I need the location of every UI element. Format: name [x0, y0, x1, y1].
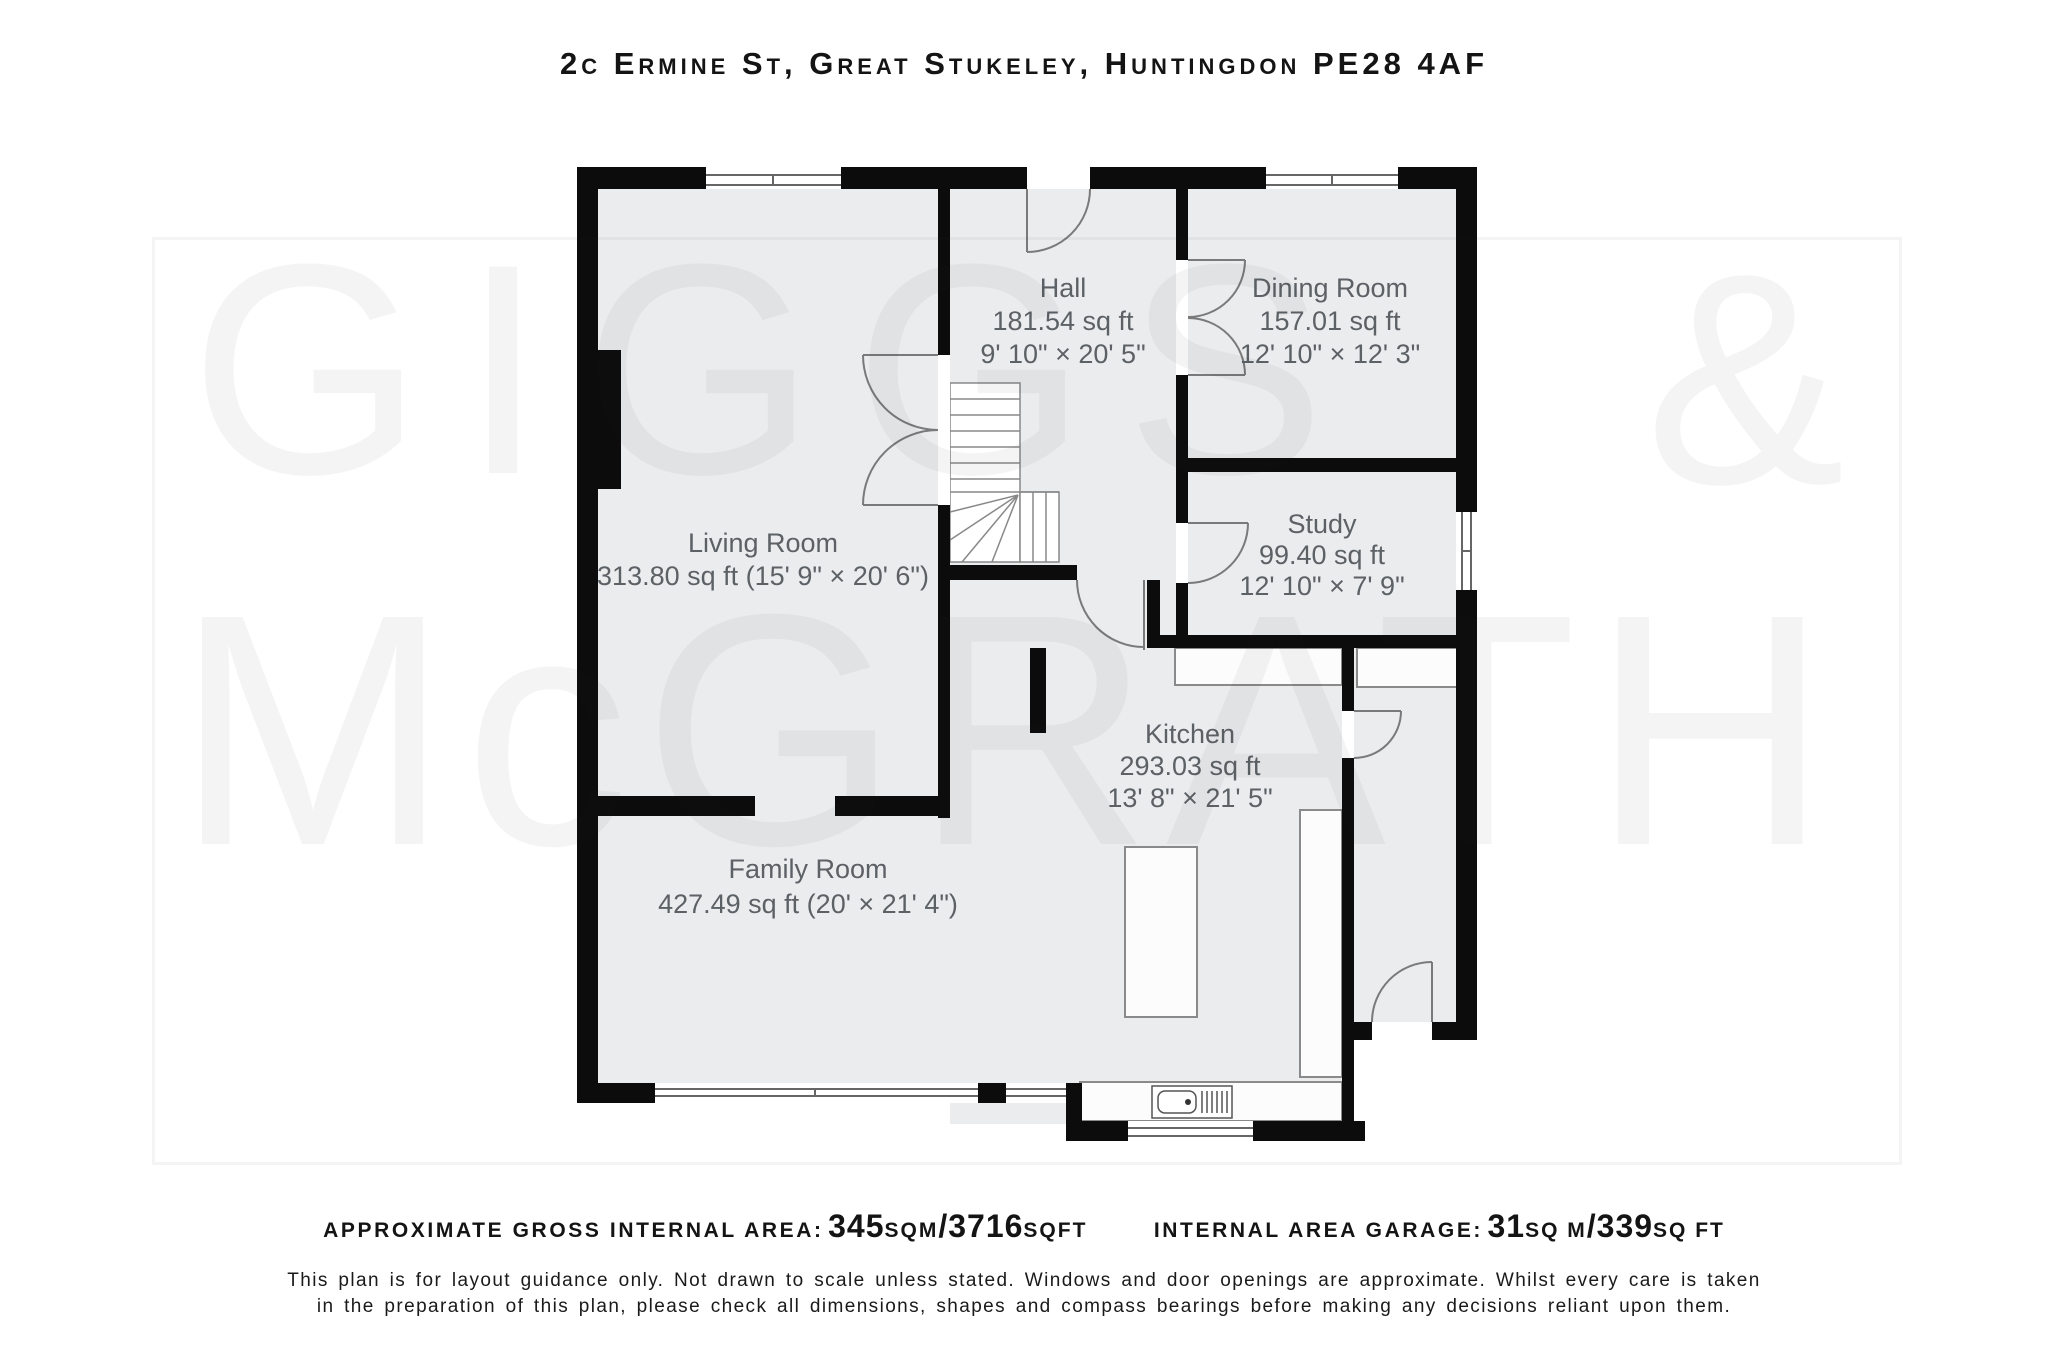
svg-text:157.01 sq ft: 157.01 sq ft	[1259, 306, 1401, 336]
window-study-right	[1456, 512, 1477, 590]
svg-text:Living Room: Living Room	[688, 528, 838, 558]
svg-text:12' 10" × 7' 9": 12' 10" × 7' 9"	[1239, 571, 1404, 601]
svg-text:12' 10" × 12' 3": 12' 10" × 12' 3"	[1240, 339, 1420, 369]
kitchen-sink	[1152, 1086, 1232, 1118]
disclaimer-line-1: This plan is for layout guidance only. N…	[0, 1268, 2048, 1294]
wall-living-family-a	[598, 796, 755, 816]
wall-living-family-b	[835, 796, 950, 816]
garage-area-slash: /	[1587, 1208, 1597, 1244]
wall-study-bottom	[1147, 635, 1456, 648]
disclaimer-line-2: in the preparation of this plan, please …	[0, 1294, 2048, 1320]
wall-kitchen-rearhall-a	[1342, 645, 1354, 711]
wall-hall-bottom	[950, 565, 1077, 580]
wall-living-hall-b	[938, 505, 950, 818]
floor-plan-drawing: Hall 181.54 sq ft 9' 10" × 20' 5" Dining…	[0, 0, 2048, 1365]
svg-text:Hall: Hall	[1040, 273, 1087, 303]
wall-right	[1456, 167, 1477, 1040]
garage-internal-area: Internal area garage: 31sq m/339sq ft	[1154, 1208, 1725, 1245]
gross-area-label: Approximate gross internal area:	[323, 1219, 824, 1242]
gross-area-sqft-value: 3716	[948, 1208, 1023, 1244]
wall-left	[577, 167, 598, 1103]
wall-hall-dining-a	[1176, 167, 1188, 260]
disclaimer: This plan is for layout guidance only. N…	[0, 1268, 2048, 1320]
wall-stub-hall	[1147, 580, 1160, 635]
internal-area-summary: Approximate gross internal area: 345sqm/…	[0, 1208, 2048, 1245]
gross-area-slash: /	[938, 1208, 948, 1244]
label-dining-room: Dining Room 157.01 sq ft 12' 10" × 12' 3…	[1240, 273, 1420, 369]
svg-text:Family Room: Family Room	[728, 854, 887, 884]
counter-under-study	[1175, 648, 1342, 685]
svg-text:9' 10" × 20' 5": 9' 10" × 20' 5"	[980, 339, 1145, 369]
svg-text:Dining Room: Dining Room	[1252, 273, 1408, 303]
counter-right	[1300, 810, 1342, 1077]
svg-text:99.40 sq ft: 99.40 sq ft	[1259, 540, 1386, 570]
garage-area-sqm-value: 31	[1487, 1208, 1525, 1244]
garage-area-sqft-unit: sq ft	[1653, 1219, 1725, 1242]
counter-rear-hall	[1357, 648, 1457, 687]
wall-dining-study	[1188, 458, 1456, 472]
window-living-top	[706, 167, 841, 189]
svg-text:13' 8" × 21' 5": 13' 8" × 21' 5"	[1107, 783, 1272, 813]
wall-kitchen-rearhall-b	[1342, 758, 1354, 1141]
gross-area-sqft-unit: sqft	[1023, 1219, 1087, 1242]
kitchen-island	[1125, 847, 1197, 1017]
gross-area-sqm-value: 345	[828, 1208, 884, 1244]
wall-stub-kitchen	[1030, 648, 1046, 733]
garage-area-sqm-unit: sq m	[1525, 1219, 1587, 1242]
garage-area-sqft-value: 339	[1597, 1208, 1653, 1244]
wall-living-hall-a	[938, 167, 950, 355]
svg-text:313.80 sq ft (15' 9" × 20' 6"): 313.80 sq ft (15' 9" × 20' 6")	[597, 561, 929, 591]
wall-hall-dining-b	[1176, 375, 1188, 523]
gross-internal-area: Approximate gross internal area: 345sqm/…	[323, 1208, 1087, 1245]
svg-text:181.54 sq ft: 181.54 sq ft	[992, 306, 1134, 336]
svg-text:Kitchen: Kitchen	[1145, 719, 1235, 749]
svg-text:Study: Study	[1287, 509, 1357, 539]
svg-text:427.49 sq ft (20' × 21' 4"): 427.49 sq ft (20' × 21' 4")	[658, 889, 958, 919]
svg-text:293.03 sq ft: 293.03 sq ft	[1119, 751, 1261, 781]
chimney-breast	[577, 350, 621, 489]
window-kitchen-bottom	[1128, 1121, 1253, 1141]
floorplan-page: 2c Ermine St, Great Stukeley, Huntingdon…	[0, 0, 2048, 1365]
garage-area-label: Internal area garage:	[1154, 1219, 1483, 1242]
gross-area-sqm-unit: sqm	[884, 1219, 938, 1242]
window-dining-top	[1266, 167, 1398, 189]
